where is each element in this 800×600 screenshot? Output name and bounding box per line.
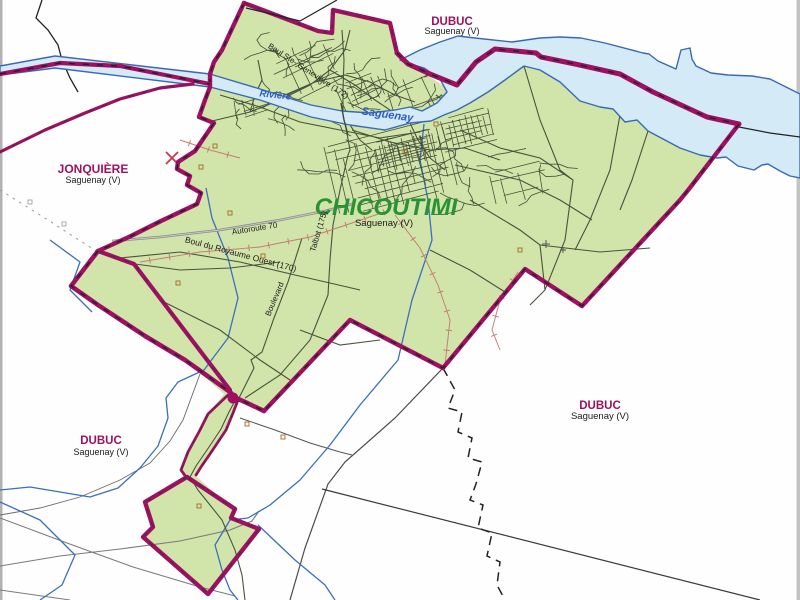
svg-text:CHICOUTIMI: CHICOUTIMI [315, 194, 459, 221]
svg-text:Saguenay (V): Saguenay (V) [571, 411, 629, 422]
svg-text:Saguenay (V): Saguenay (V) [424, 26, 479, 36]
svg-text:Saguenay (V): Saguenay (V) [73, 447, 128, 457]
svg-text:DUBUC: DUBUC [80, 435, 122, 447]
svg-text:Saguenay (V): Saguenay (V) [355, 218, 413, 229]
svg-text:JONQUIÈRE: JONQUIÈRE [58, 161, 129, 176]
svg-text:Saguenay (V): Saguenay (V) [65, 175, 120, 185]
